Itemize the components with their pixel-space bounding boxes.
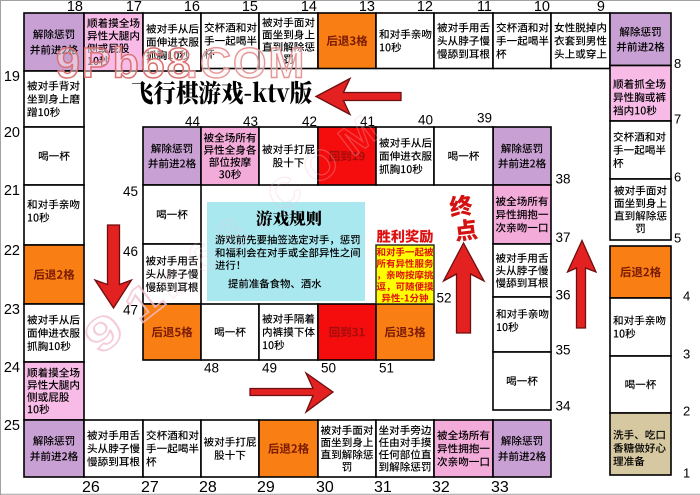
svg-text:20: 20 (4, 125, 20, 141)
svg-text:3: 3 (683, 347, 690, 362)
svg-text:27: 27 (141, 479, 159, 495)
svg-text:39: 39 (477, 111, 492, 126)
svg-text:46: 46 (123, 244, 138, 259)
svg-text:10: 10 (534, 0, 550, 15)
svg-text:6: 6 (674, 170, 681, 185)
svg-text:44: 44 (185, 114, 201, 129)
svg-text:22: 22 (4, 243, 20, 259)
svg-text:33: 33 (491, 479, 509, 495)
svg-text:32: 32 (432, 479, 450, 495)
svg-text:45: 45 (123, 184, 138, 199)
svg-text:40: 40 (418, 113, 433, 128)
svg-text:51: 51 (379, 361, 394, 376)
svg-text:49: 49 (262, 361, 277, 376)
svg-text:16: 16 (184, 0, 200, 15)
svg-text:26: 26 (82, 479, 100, 495)
svg-text:48: 48 (204, 361, 219, 376)
svg-text:23: 23 (4, 302, 20, 318)
svg-text:30: 30 (316, 479, 334, 495)
svg-text:5: 5 (674, 231, 681, 246)
svg-text:24: 24 (4, 360, 20, 376)
svg-text:19: 19 (4, 69, 20, 85)
svg-text:34: 34 (556, 399, 572, 414)
svg-text:13: 13 (359, 0, 375, 15)
svg-text:50: 50 (321, 361, 336, 376)
svg-text:31: 31 (374, 479, 392, 495)
svg-text:25: 25 (4, 418, 20, 434)
svg-text:1: 1 (683, 466, 690, 481)
svg-text:21: 21 (4, 183, 20, 199)
svg-text:9Pb68: 9Pb68 (56, 40, 193, 88)
svg-text:9: 9 (597, 0, 605, 15)
svg-text:18: 18 (67, 0, 83, 15)
svg-text:52: 52 (437, 291, 452, 306)
svg-text:.COM: .COM (186, 40, 306, 88)
svg-text:4: 4 (683, 289, 690, 304)
svg-text:38: 38 (556, 172, 571, 187)
svg-text:12: 12 (417, 0, 433, 15)
svg-text:42: 42 (302, 114, 317, 129)
svg-text:43: 43 (243, 114, 258, 129)
svg-text:29: 29 (257, 479, 275, 495)
svg-text:14: 14 (301, 0, 317, 15)
svg-text:17: 17 (126, 0, 142, 15)
svg-text:28: 28 (199, 479, 217, 495)
svg-text:37: 37 (556, 230, 571, 245)
svg-text:11: 11 (477, 0, 492, 15)
svg-text:2: 2 (683, 404, 690, 419)
svg-text:8: 8 (674, 56, 681, 71)
svg-text:15: 15 (242, 0, 258, 15)
svg-text:7: 7 (674, 112, 681, 127)
svg-text:36: 36 (556, 288, 571, 303)
svg-text:35: 35 (556, 343, 571, 358)
